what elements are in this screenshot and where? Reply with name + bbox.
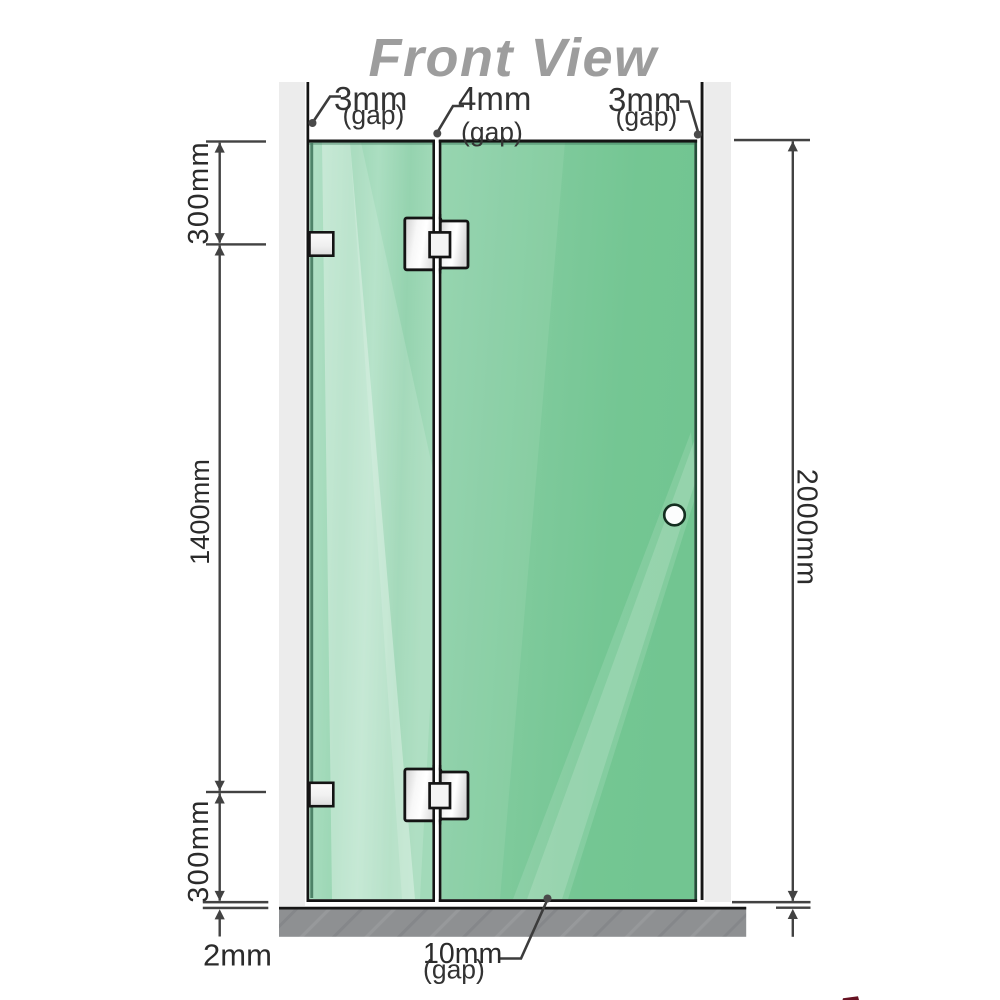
svg-text:300mm: 300mm <box>183 141 215 245</box>
svg-text:(gap): (gap) <box>461 117 523 147</box>
svg-text:4mm: 4mm <box>458 80 531 117</box>
svg-text:(gap): (gap) <box>616 102 678 132</box>
svg-text:(gap): (gap) <box>423 955 485 985</box>
svg-text:300mm: 300mm <box>183 799 215 903</box>
svg-text:Front View: Front View <box>368 28 659 88</box>
svg-text:1400mm: 1400mm <box>184 459 215 565</box>
svg-text:2mm: 2mm <box>203 938 272 973</box>
svg-text:(gap): (gap) <box>343 100 405 130</box>
svg-text:2000mm: 2000mm <box>791 469 823 586</box>
